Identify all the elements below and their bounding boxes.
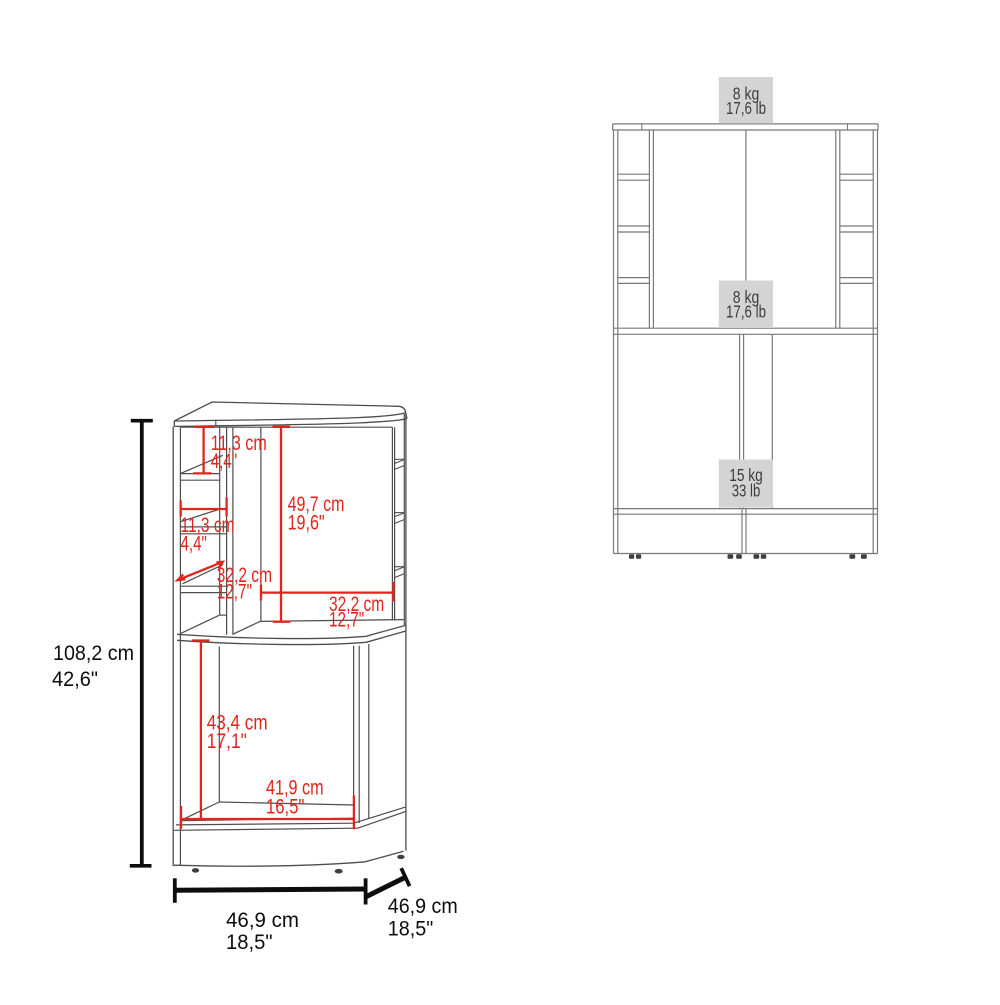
svg-text:16,5": 16,5" [266, 796, 304, 819]
svg-text:33 lb: 33 lb [732, 480, 761, 500]
svg-text:17,6 lb: 17,6 lb [726, 98, 766, 118]
svg-text:4,4": 4,4" [181, 532, 207, 555]
svg-text:42,6": 42,6" [52, 667, 98, 691]
svg-text:46,9 cm: 46,9 cm [388, 894, 458, 918]
svg-text:18,5": 18,5" [388, 917, 434, 941]
svg-text:12,7": 12,7" [329, 609, 364, 632]
svg-text:18,5": 18,5" [226, 930, 273, 954]
svg-text:19,6": 19,6" [288, 512, 325, 535]
svg-text:17,1": 17,1" [207, 730, 247, 753]
svg-text:46,9 cm: 46,9 cm [226, 908, 299, 932]
svg-text:12,7": 12,7" [217, 581, 252, 604]
svg-text:108,2 cm: 108,2 cm [53, 641, 134, 665]
svg-text:17,6 lb: 17,6 lb [726, 302, 766, 322]
svg-text:4,4": 4,4" [211, 450, 237, 473]
